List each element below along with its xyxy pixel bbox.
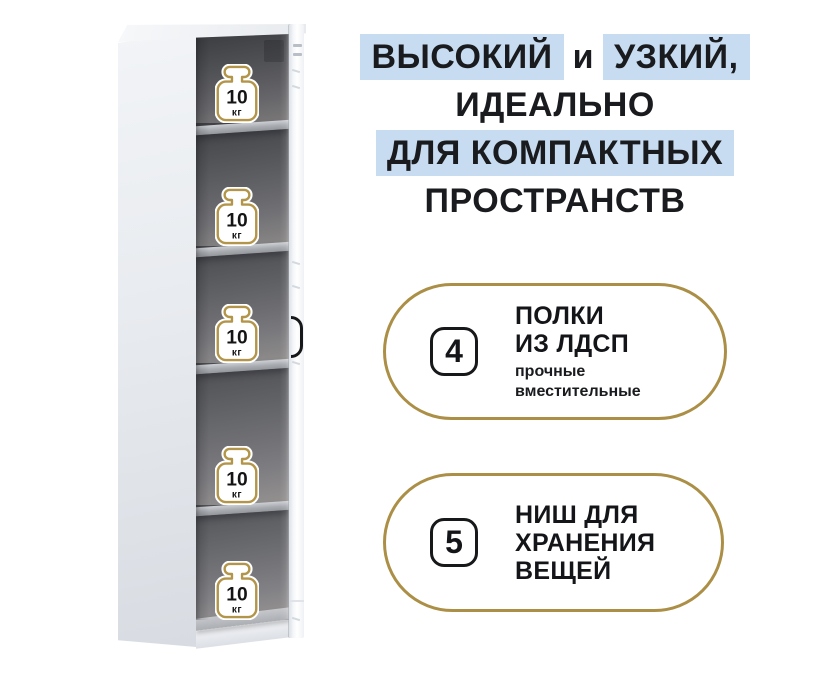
door-reflection [292,261,300,265]
door-handle [291,316,303,358]
headline-line-2: ИДЕАЛЬНО [330,82,780,128]
door-reflection [292,617,300,621]
feature-number: 4 [430,327,478,376]
feature-text: НИШ ДЛЯ ХРАНЕНИЯ ВЕЩЕЙ [515,501,655,585]
headline-word: и [564,38,603,77]
door-seam [289,600,304,602]
weight-value: 10 [226,328,247,349]
door-hinge-detail [293,44,302,47]
door-hinge-detail [293,53,302,56]
cabinet-door [289,24,304,638]
headline-highlighted-word: ВЫСОКИЙ [360,34,563,80]
headline: ВЫСОКИЙ и УЗКИЙ, ИДЕАЛЬНО ДЛЯ КОМПАКТНЫХ… [330,34,780,226]
feature-niches-badge: 5 НИШ ДЛЯ ХРАНЕНИЯ ВЕЩЕЙ [383,473,724,612]
feature-title-line: ПОЛКИ [515,302,641,330]
door-reflection [292,69,300,73]
product-infographic: 10 кг 10 кг 10 кг 10 кг 10 кг [0,0,816,700]
weight-value: 10 [226,470,247,491]
headline-word: ПРОСТРАНСТВ [416,182,695,221]
weight-10kg-icon: 10 кг [215,561,259,620]
feature-subtitle-line: прочные [515,362,641,382]
weight-unit: кг [232,348,242,359]
weight-unit: кг [232,490,242,501]
feature-subtitle-line: вместительные [515,382,641,402]
weight-value: 10 [226,88,247,109]
weight-10kg-icon: 10 кг [215,304,259,363]
headline-line-1: ВЫСОКИЙ и УЗКИЙ, [330,34,780,80]
feature-shelves-badge: 4 ПОЛКИ ИЗ ЛДСП прочные вместительные [383,283,727,420]
weight-10kg-icon: 10 кг [215,446,259,505]
door-reflection [292,361,300,365]
headline-highlighted-word: УЗКИЙ, [603,34,750,80]
feature-subtitle: прочные вместительные [515,362,641,402]
headline-word: ИДЕАЛЬНО [446,86,664,125]
feature-number: 5 [430,518,478,567]
feature-title-line: ХРАНЕНИЯ [515,529,655,557]
headline-highlighted-word: ДЛЯ КОМПАКТНЫХ [376,130,734,176]
weight-value: 10 [226,211,247,232]
door-reflection [292,285,300,289]
feature-text: ПОЛКИ ИЗ ЛДСП прочные вместительные [515,302,641,402]
feature-title-line: НИШ ДЛЯ [515,501,655,529]
weight-value: 10 [226,585,247,606]
feature-title-line: ВЕЩЕЙ [515,557,655,585]
weight-unit: кг [232,605,242,616]
headline-line-3: ДЛЯ КОМПАКТНЫХ [330,130,780,176]
feature-title-line: ИЗ ЛДСП [515,330,641,358]
back-panel-detail [264,40,284,62]
door-reflection [292,85,300,89]
weight-10kg-icon: 10 кг [215,64,259,123]
cabinet-side-panel [118,31,196,647]
weight-10kg-icon: 10 кг [215,187,259,246]
weight-unit: кг [232,108,242,119]
weight-unit: кг [232,231,242,242]
headline-line-4: ПРОСТРАНСТВ [330,178,780,224]
